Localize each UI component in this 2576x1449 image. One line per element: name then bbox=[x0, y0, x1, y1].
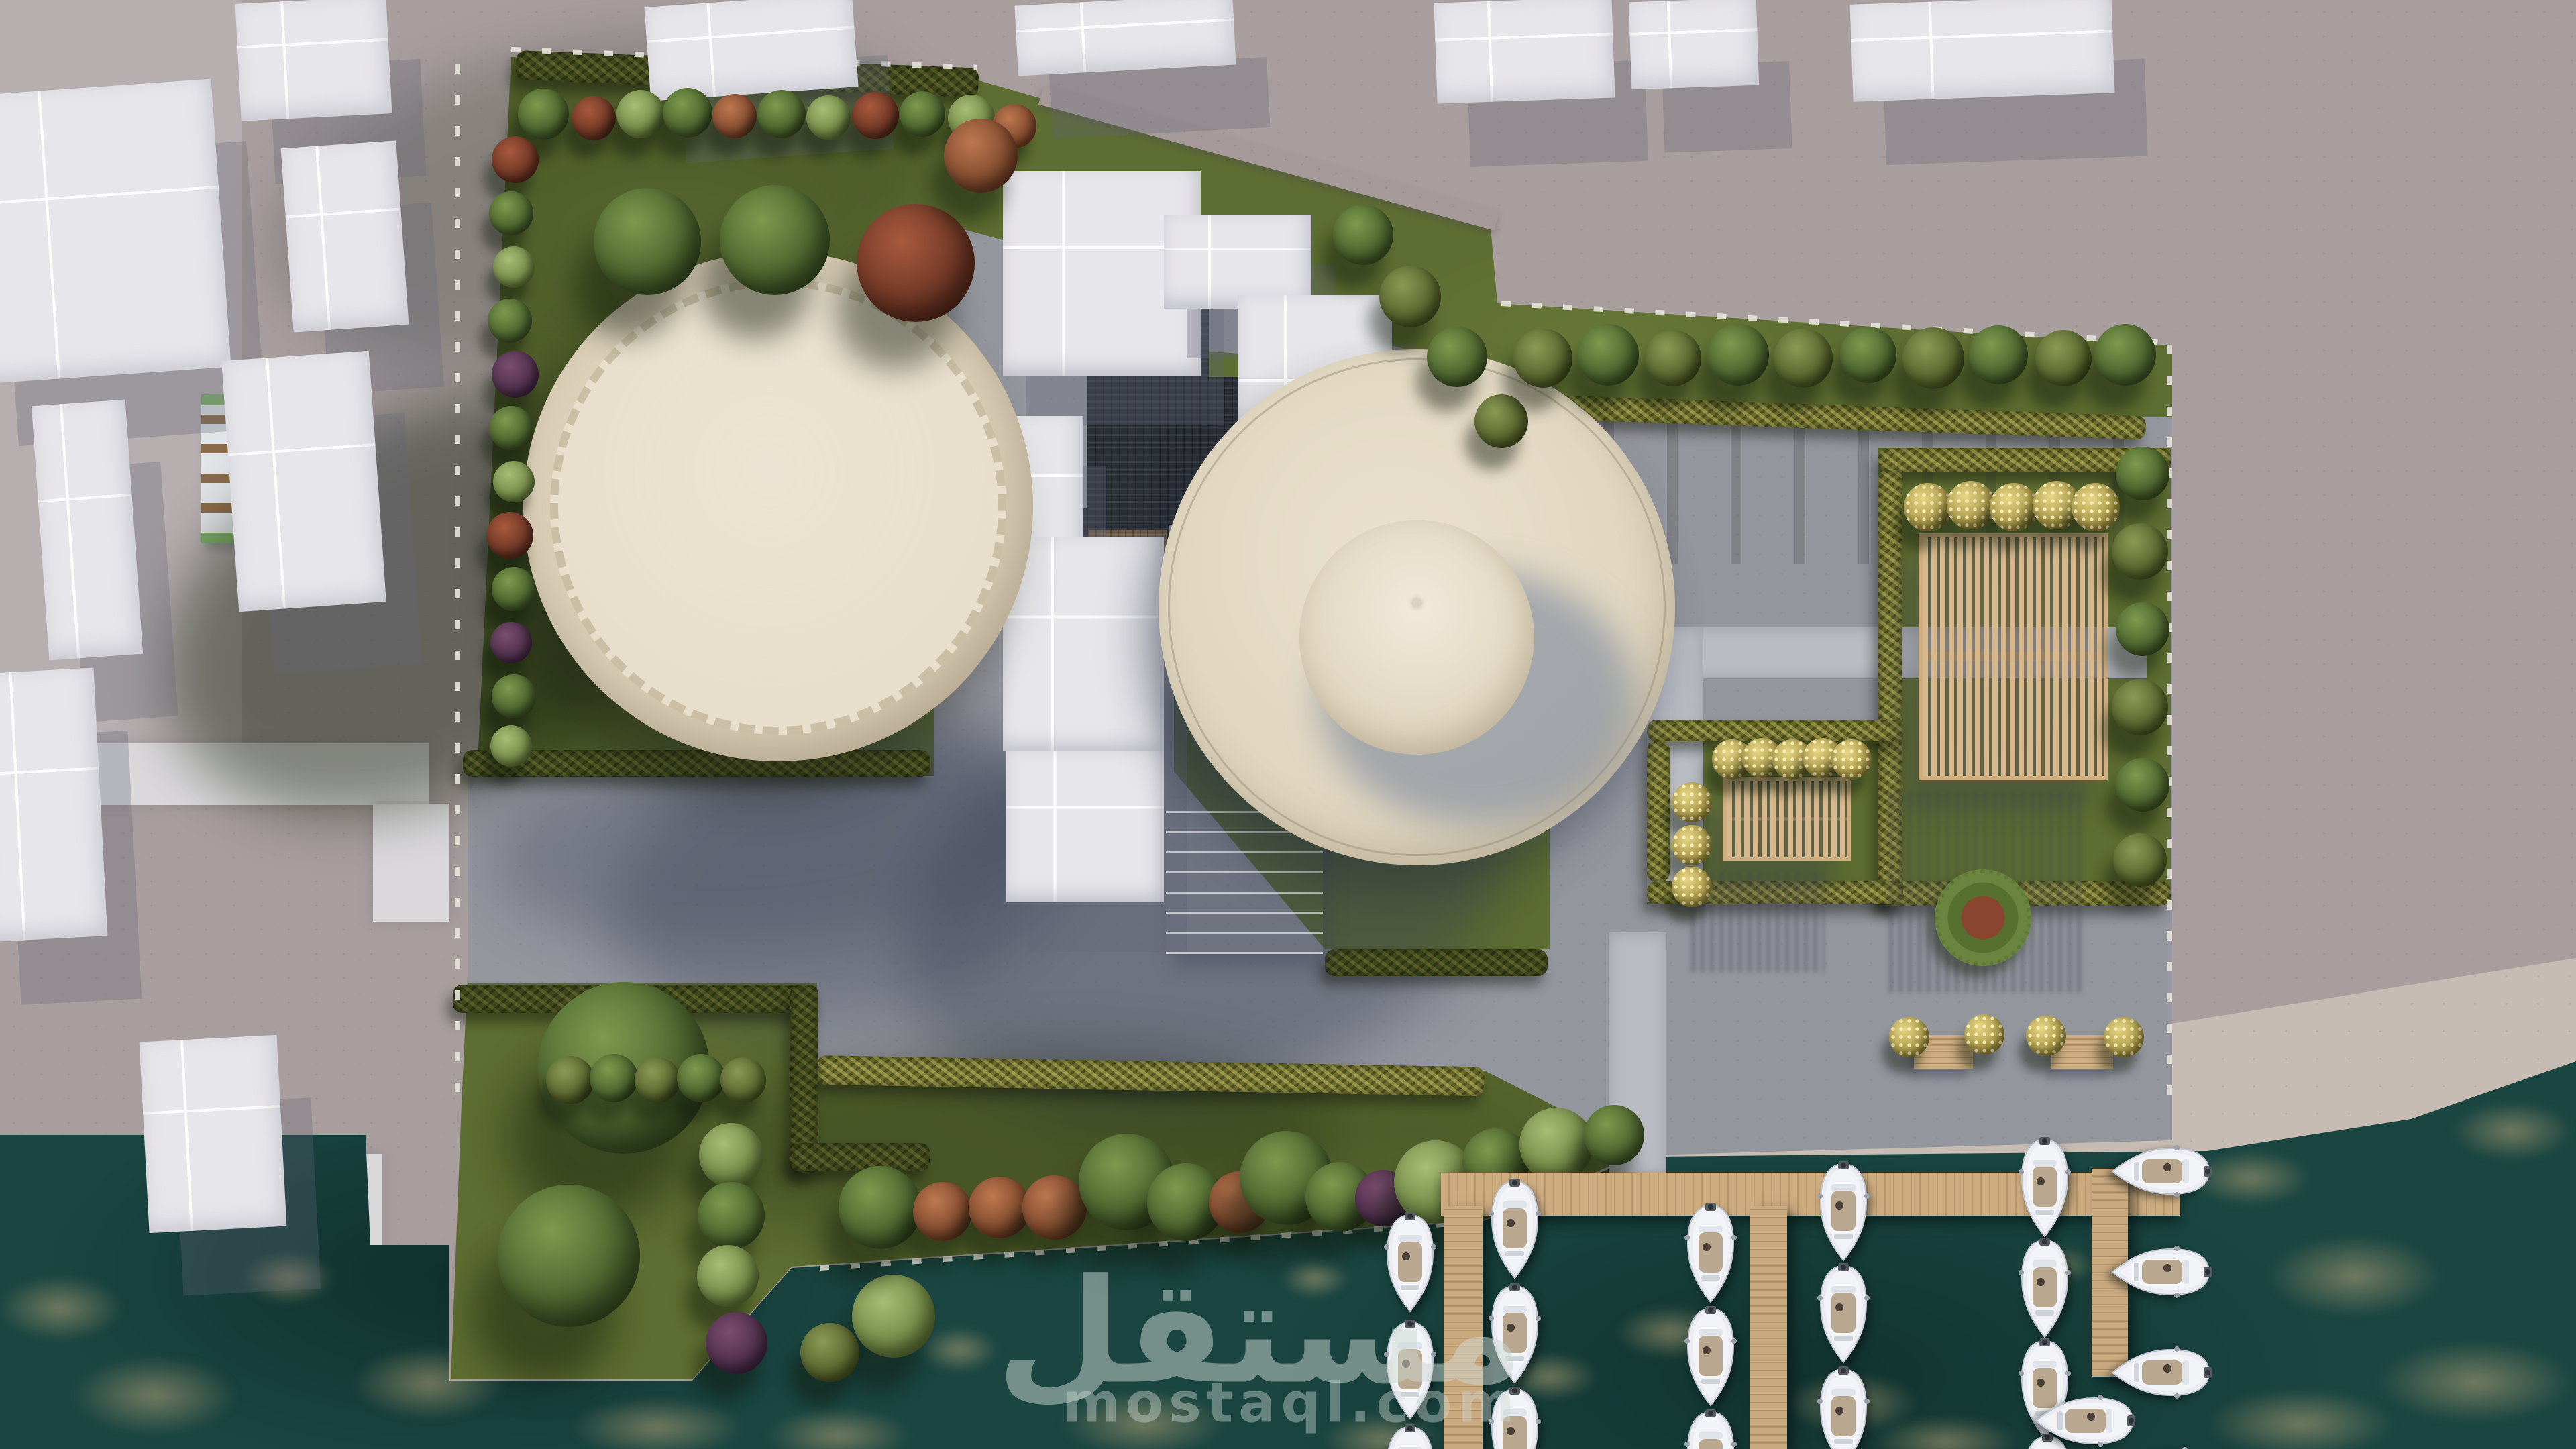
boat bbox=[1681, 1306, 1740, 1407]
boat-graphic bbox=[1681, 1306, 1740, 1407]
boat bbox=[2111, 1242, 2212, 1301]
boat-graphic bbox=[1814, 1263, 1873, 1364]
watermark-latin: mostaql.com bbox=[1063, 1372, 1519, 1436]
boat bbox=[1681, 1203, 1740, 1303]
boat bbox=[2015, 1137, 2074, 1238]
boat bbox=[2015, 1238, 2074, 1338]
boat bbox=[2111, 1142, 2212, 1201]
marina-layer bbox=[0, 0, 2576, 1449]
boat bbox=[1814, 1366, 1873, 1449]
boat bbox=[1814, 1263, 1873, 1364]
boat-graphic bbox=[2111, 1242, 2212, 1301]
boat bbox=[2035, 1391, 2135, 1449]
aerial-render-viewport: مستقل mostaql.com bbox=[0, 0, 2576, 1449]
marina-pier bbox=[1750, 1206, 1787, 1449]
boat-graphic bbox=[1681, 1203, 1740, 1303]
site-plan-render-stage: مستقل mostaql.com bbox=[0, 0, 2576, 1449]
boat-graphic bbox=[2035, 1391, 2135, 1449]
boat-graphic bbox=[1814, 1366, 1873, 1449]
boat bbox=[1814, 1161, 1873, 1262]
boat-graphic bbox=[2015, 1137, 2074, 1238]
boat-graphic bbox=[2111, 1142, 2212, 1201]
boat-graphic bbox=[2015, 1238, 2074, 1338]
boat-graphic bbox=[1814, 1161, 1873, 1262]
boat-graphic bbox=[1681, 1409, 1740, 1449]
boat bbox=[1681, 1409, 1740, 1449]
